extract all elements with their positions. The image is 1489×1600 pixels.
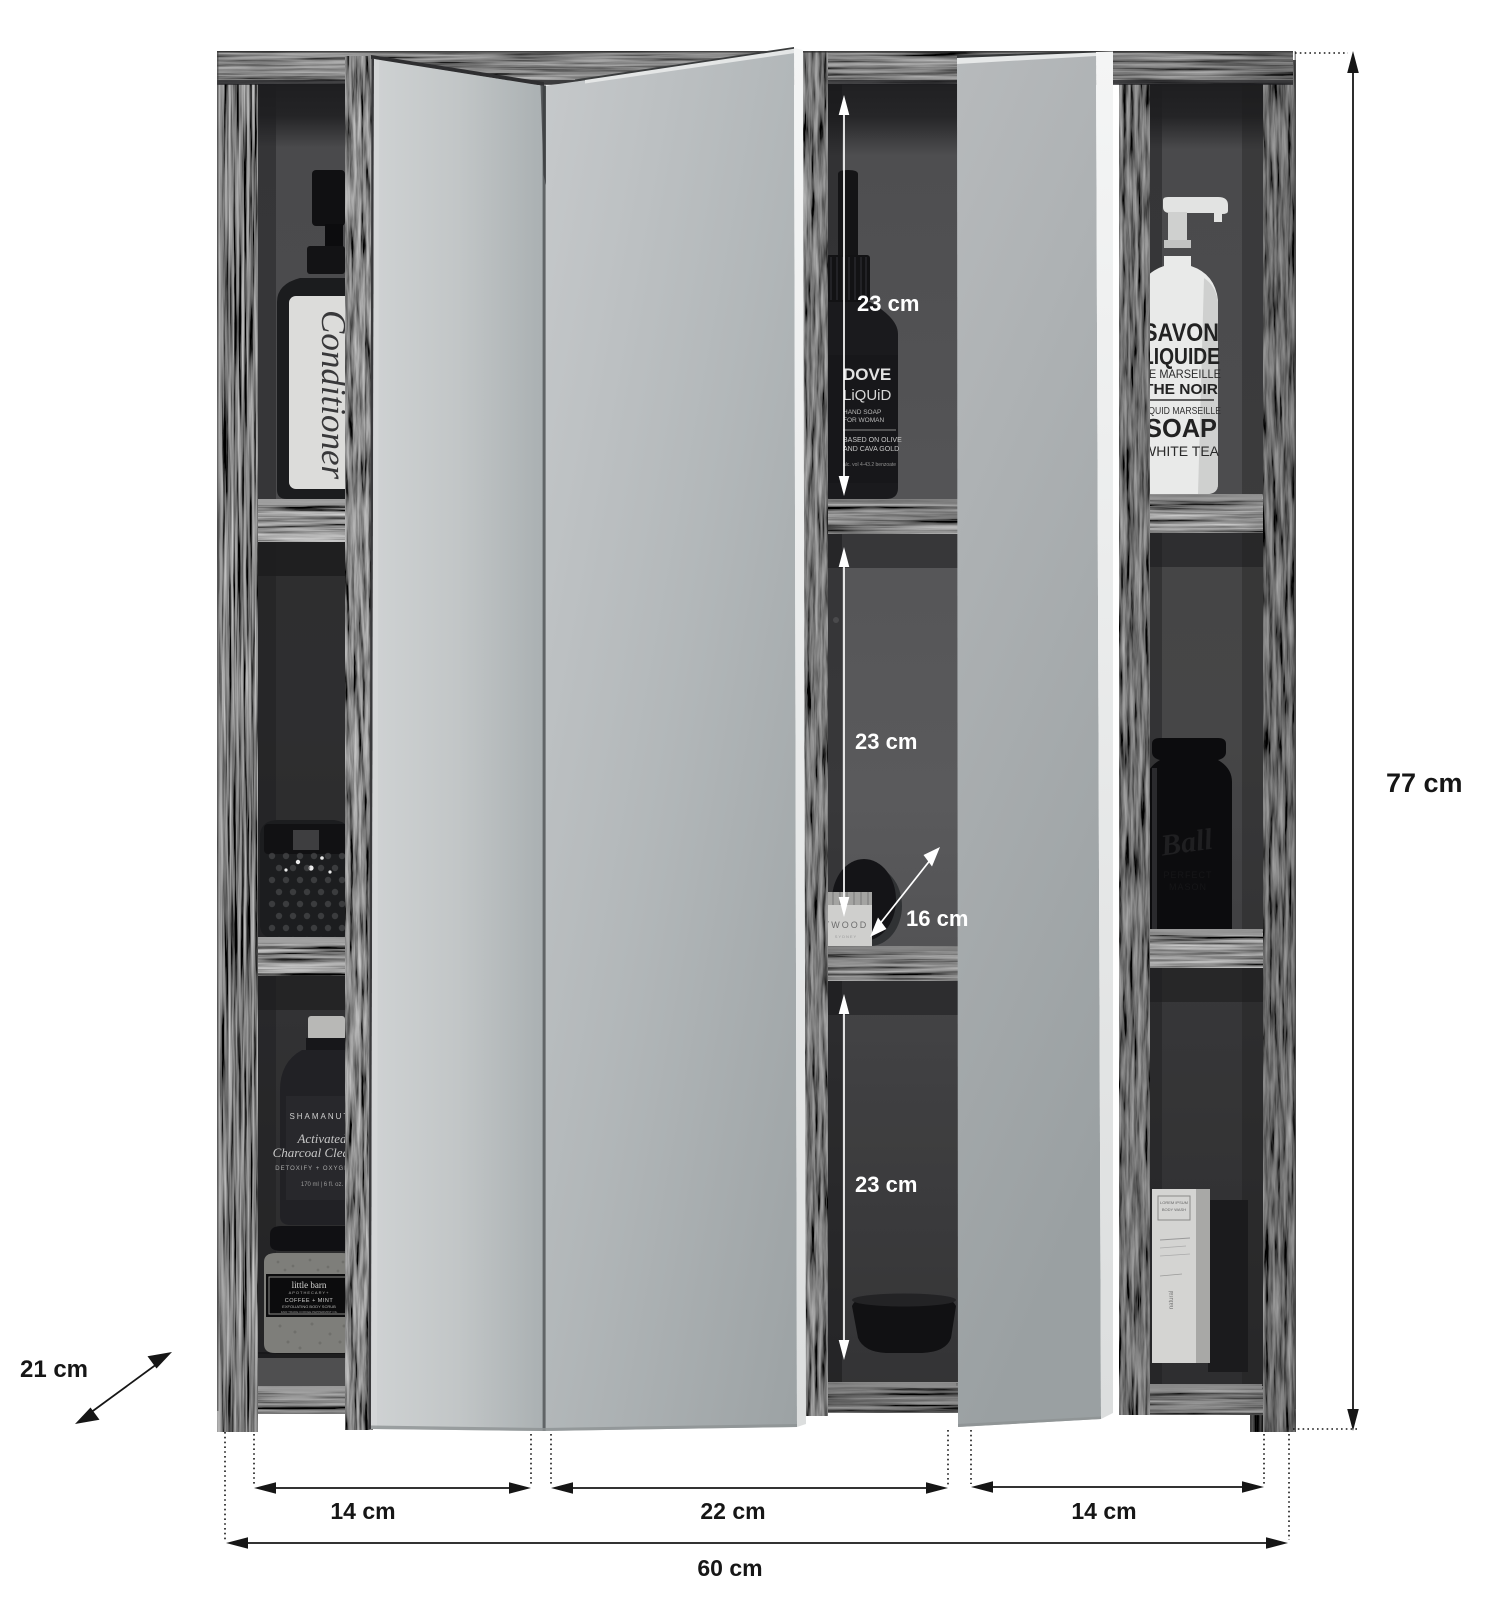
svg-text:LiQUiD: LiQUiD — [843, 387, 892, 404]
svg-text:77 cm: 77 cm — [1386, 768, 1463, 798]
svg-text:SOAP: SOAP — [1145, 413, 1217, 443]
svg-text:MASON: MASON — [1169, 882, 1207, 892]
svg-text:23 cm: 23 cm — [855, 1172, 917, 1197]
svg-text:DOVE: DOVE — [843, 365, 891, 384]
svg-text:natural: natural — [1169, 1291, 1175, 1309]
svg-text:DE MARSEILLE: DE MARSEILLE — [1141, 367, 1221, 381]
svg-text:LOREM IPSUM: LOREM IPSUM — [1160, 1200, 1188, 1205]
svg-text:alc. vol 4-43.2 benzoate: alc. vol 4-43.2 benzoate — [843, 462, 896, 468]
svg-text:LIQUIDE: LIQUIDE — [1142, 343, 1220, 369]
svg-text:14 cm: 14 cm — [1071, 1498, 1136, 1524]
svg-text:170 ml | 6 fl. oz.: 170 ml | 6 fl. oz. — [301, 1182, 344, 1188]
svg-text:THE NOIR: THE NOIR — [1144, 381, 1218, 398]
svg-text:SYDNEY: SYDNEY — [835, 934, 857, 939]
svg-text:SHAMANUTI: SHAMANUTI — [289, 1112, 354, 1121]
svg-text:APOTHECARY+: APOTHECARY+ — [289, 1290, 330, 1295]
svg-text:HAND SOAP: HAND SOAP — [843, 409, 881, 416]
svg-text:14 cm: 14 cm — [330, 1498, 395, 1524]
svg-text:BASED ON OLIVE: BASED ON OLIVE — [843, 437, 902, 444]
svg-text:WHITE TEA: WHITE TEA — [1143, 443, 1220, 459]
svg-text:BODY WASH: BODY WASH — [1162, 1207, 1186, 1212]
svg-text:FAIR TRADE COFFEE PEPPERMINT O: FAIR TRADE COFFEE PEPPERMINT OIL — [281, 1310, 338, 1314]
svg-text:21 cm: 21 cm — [20, 1356, 88, 1383]
svg-text:TWOOD: TWOOD — [824, 920, 869, 930]
svg-text:EXFOLIATING BODY SCRUB: EXFOLIATING BODY SCRUB — [282, 1304, 336, 1309]
svg-text:22 cm: 22 cm — [700, 1498, 765, 1524]
svg-text:23 cm: 23 cm — [855, 729, 917, 754]
svg-text:16 cm: 16 cm — [906, 906, 968, 931]
svg-text:PERFECT: PERFECT — [1163, 870, 1212, 880]
svg-text:Activated: Activated — [296, 1131, 347, 1146]
svg-text:AND CAVA GOLD: AND CAVA GOLD — [843, 446, 899, 453]
svg-text:23 cm: 23 cm — [857, 291, 919, 316]
svg-text:FOR WOMAN: FOR WOMAN — [843, 417, 884, 424]
svg-text:60 cm: 60 cm — [697, 1555, 762, 1581]
svg-text:little barn: little barn — [292, 1280, 327, 1290]
